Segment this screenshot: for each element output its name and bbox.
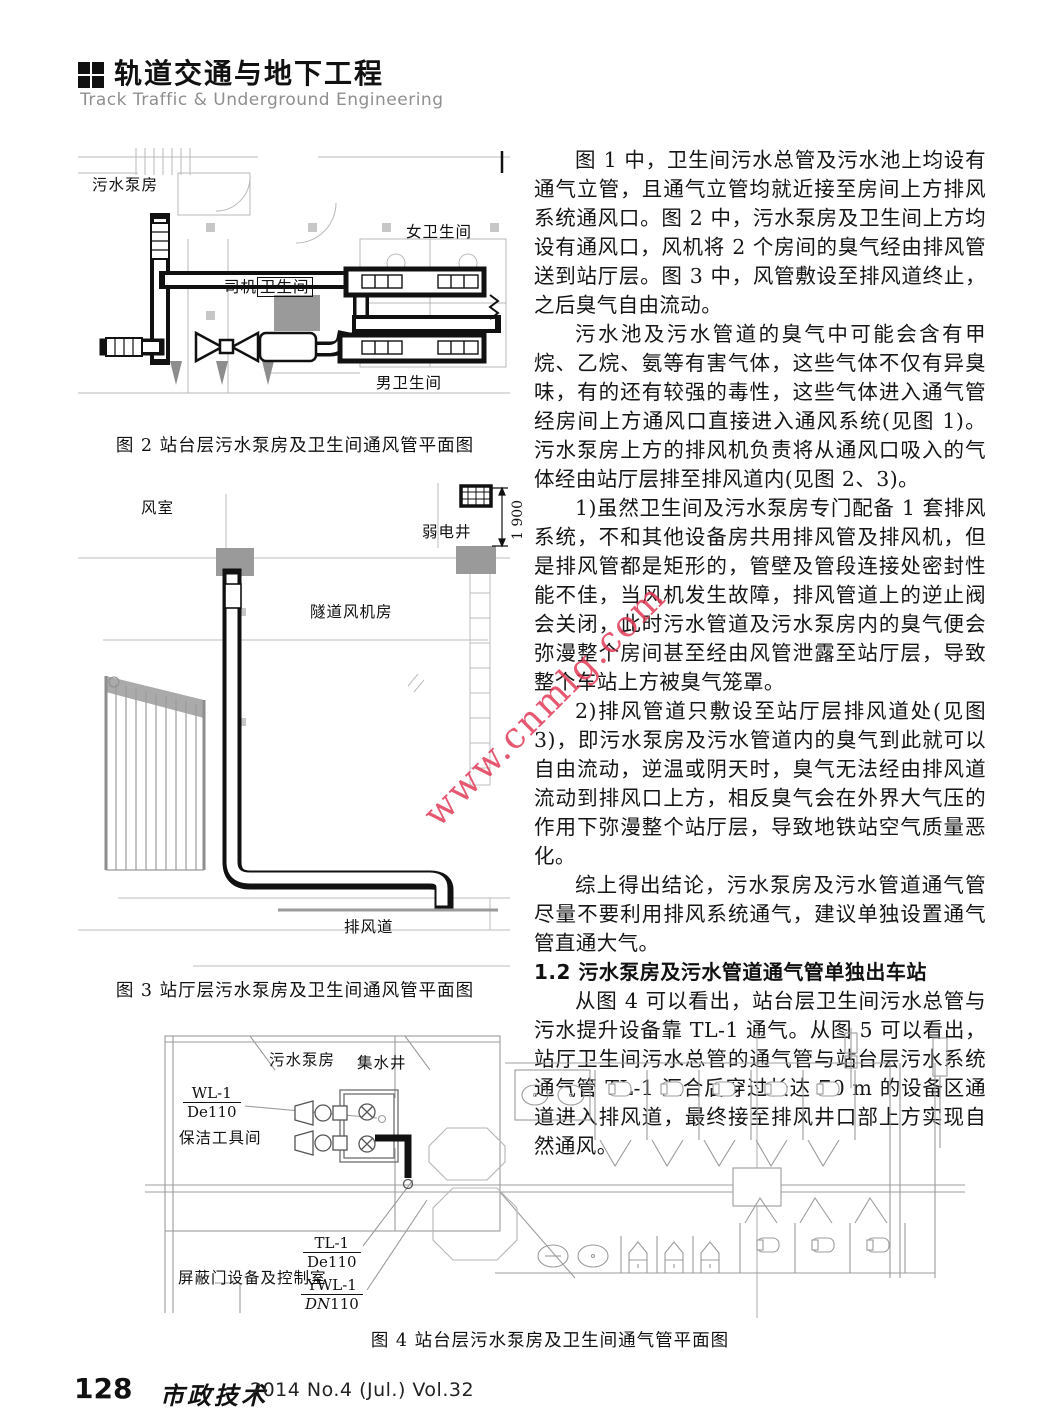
fig2-label-men-toilet: 男卫生间 [376, 371, 442, 393]
figure2-plan-drawing: 污水泵房 女卫生间 司机卫生间 男卫生间 [78, 143, 510, 430]
fig4-label-psd-equipment-room: 屏蔽门设备及控制室 [178, 1266, 327, 1288]
journal-title-en: Track Traffic & Underground Engineering [80, 90, 444, 110]
figure2-caption: 图 2 站台层污水泵房及卫生间通风管平面图 [80, 432, 510, 457]
section-heading-1-2: 1.2 污水泵房及污水管道通气管单独出车站 [534, 958, 986, 987]
paragraph-2: 污水池及污水管道的臭气中可能会含有甲烷、乙烷、氨等有害气体，这些气体不仅有异臭味… [534, 320, 986, 494]
paragraph-5: 综上得出结论，污水泵房及污水管道通气管尽量不要利用排风系统通气，建议单独设置通气… [534, 871, 986, 958]
fig2-label-sewage-pump-room: 污水泵房 [92, 173, 158, 195]
paragraph-3: 1)虽然卫生间及污水泵房专门配备 1 套排风系统，不和其他设备房共用排风管及排风… [534, 494, 986, 697]
fig3-label-tunnel-fan-room: 隧道风机房 [310, 600, 393, 622]
journal-title-cn: 轨道交通与地下工程 [114, 52, 384, 92]
figure3-caption: 图 3 站厅层污水泵房及卫生间通风管平面图 [80, 977, 510, 1002]
fig4-label-sump-well: 集水井 [357, 1051, 407, 1073]
page-number: 128 [74, 1372, 132, 1405]
journal-logo-squares-icon [78, 62, 104, 88]
paragraph-1: 图 1 中，卫生间污水总管及污水池上均设有通气立管，且通气立管均就近接至房间上方… [534, 146, 986, 320]
figure4-caption: 图 4 站台层污水泵房及卫生间通气管平面图 [145, 1327, 955, 1352]
figure4-plan-drawing: 污水泵房 集水井 WL-1De110 保洁工具间 TL-1De110 YWL-1… [145, 1028, 965, 1318]
journal-page: 轨道交通与地下工程 Track Traffic & Underground En… [0, 0, 1046, 1413]
fig4-label-sewage-pump-room: 污水泵房 [269, 1048, 335, 1070]
fig2-label-driver-toilet: 司机卫生间 [224, 275, 313, 297]
fig3-label-weak-current-shaft: 弱电井 [422, 520, 472, 542]
fig2-label-women-toilet: 女卫生间 [406, 220, 472, 242]
fig4-label-cleaning-tool-room: 保洁工具间 [179, 1126, 262, 1148]
fig3-dimension-1900: 1 900 [510, 500, 526, 540]
fig2-gray-block [274, 295, 320, 331]
fig3-label-exhaust-duct: 排风道 [344, 915, 394, 937]
issue-info: 2014 No.4 (Jul.) Vol.32 [250, 1379, 474, 1401]
fig4-label-wl1: WL-1De110 [183, 1084, 241, 1121]
fig3-label-air-room: 风室 [141, 496, 174, 518]
figure3-linework [78, 478, 510, 968]
figure3-plan-drawing: 风室 弱电井 1 900 隧道风机房 排风道 [78, 478, 510, 968]
article-text-column: 图 1 中，卫生间污水总管及污水池上均设有通气立管，且通气立管均就近接至房间上方… [534, 146, 986, 1161]
paragraph-4: 2)排风管道只敷设至站厅层排风道处(见图 3)，即污水泵房及污水管道内的臭气到此… [534, 697, 986, 871]
